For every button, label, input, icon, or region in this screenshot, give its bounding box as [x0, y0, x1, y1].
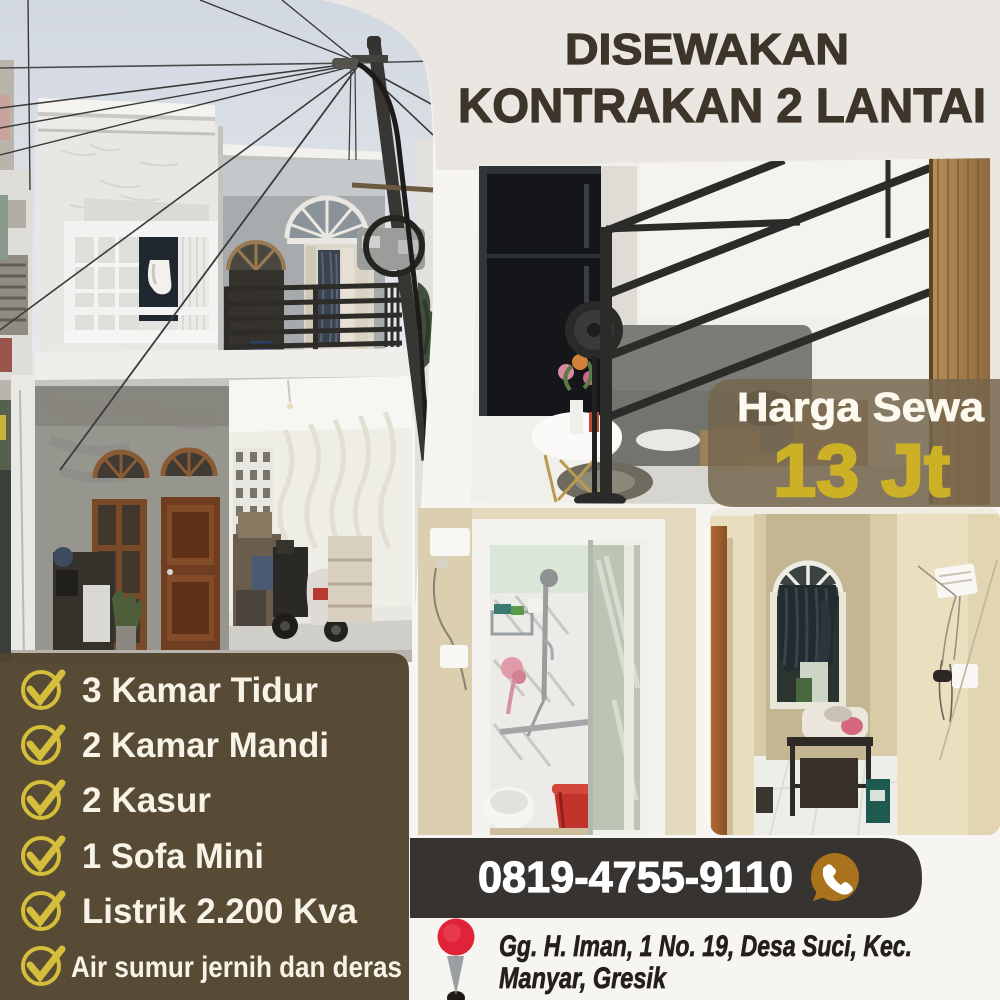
- svg-text:Harga Sewa: Harga Sewa: [737, 384, 985, 430]
- svg-text:Air sumur jernih dan deras: Air sumur jernih dan deras: [71, 951, 402, 984]
- svg-text:Gg. H. Iman, 1 No. 19, Desa Su: Gg. H. Iman, 1 No. 19, Desa Suci, Kec.: [499, 930, 912, 963]
- svg-text:2 Kamar Mandi: 2 Kamar Mandi: [82, 726, 329, 765]
- svg-text:DISEWAKAN: DISEWAKAN: [565, 25, 849, 74]
- svg-text:13 Jt: 13 Jt: [773, 429, 950, 512]
- svg-text:3 Kamar Tidur: 3 Kamar Tidur: [82, 671, 318, 710]
- svg-text:2 Kasur: 2 Kasur: [82, 781, 211, 820]
- svg-text:KONTRAKAN 2 LANTAI: KONTRAKAN 2 LANTAI: [458, 80, 986, 133]
- svg-text:0819-4755-9110: 0819-4755-9110: [478, 853, 793, 902]
- svg-text:Listrik 2.200 Kva: Listrik 2.200 Kva: [82, 892, 358, 931]
- svg-text:1 Sofa Mini: 1 Sofa Mini: [82, 837, 264, 876]
- svg-text:Manyar, Gresik: Manyar, Gresik: [499, 962, 667, 995]
